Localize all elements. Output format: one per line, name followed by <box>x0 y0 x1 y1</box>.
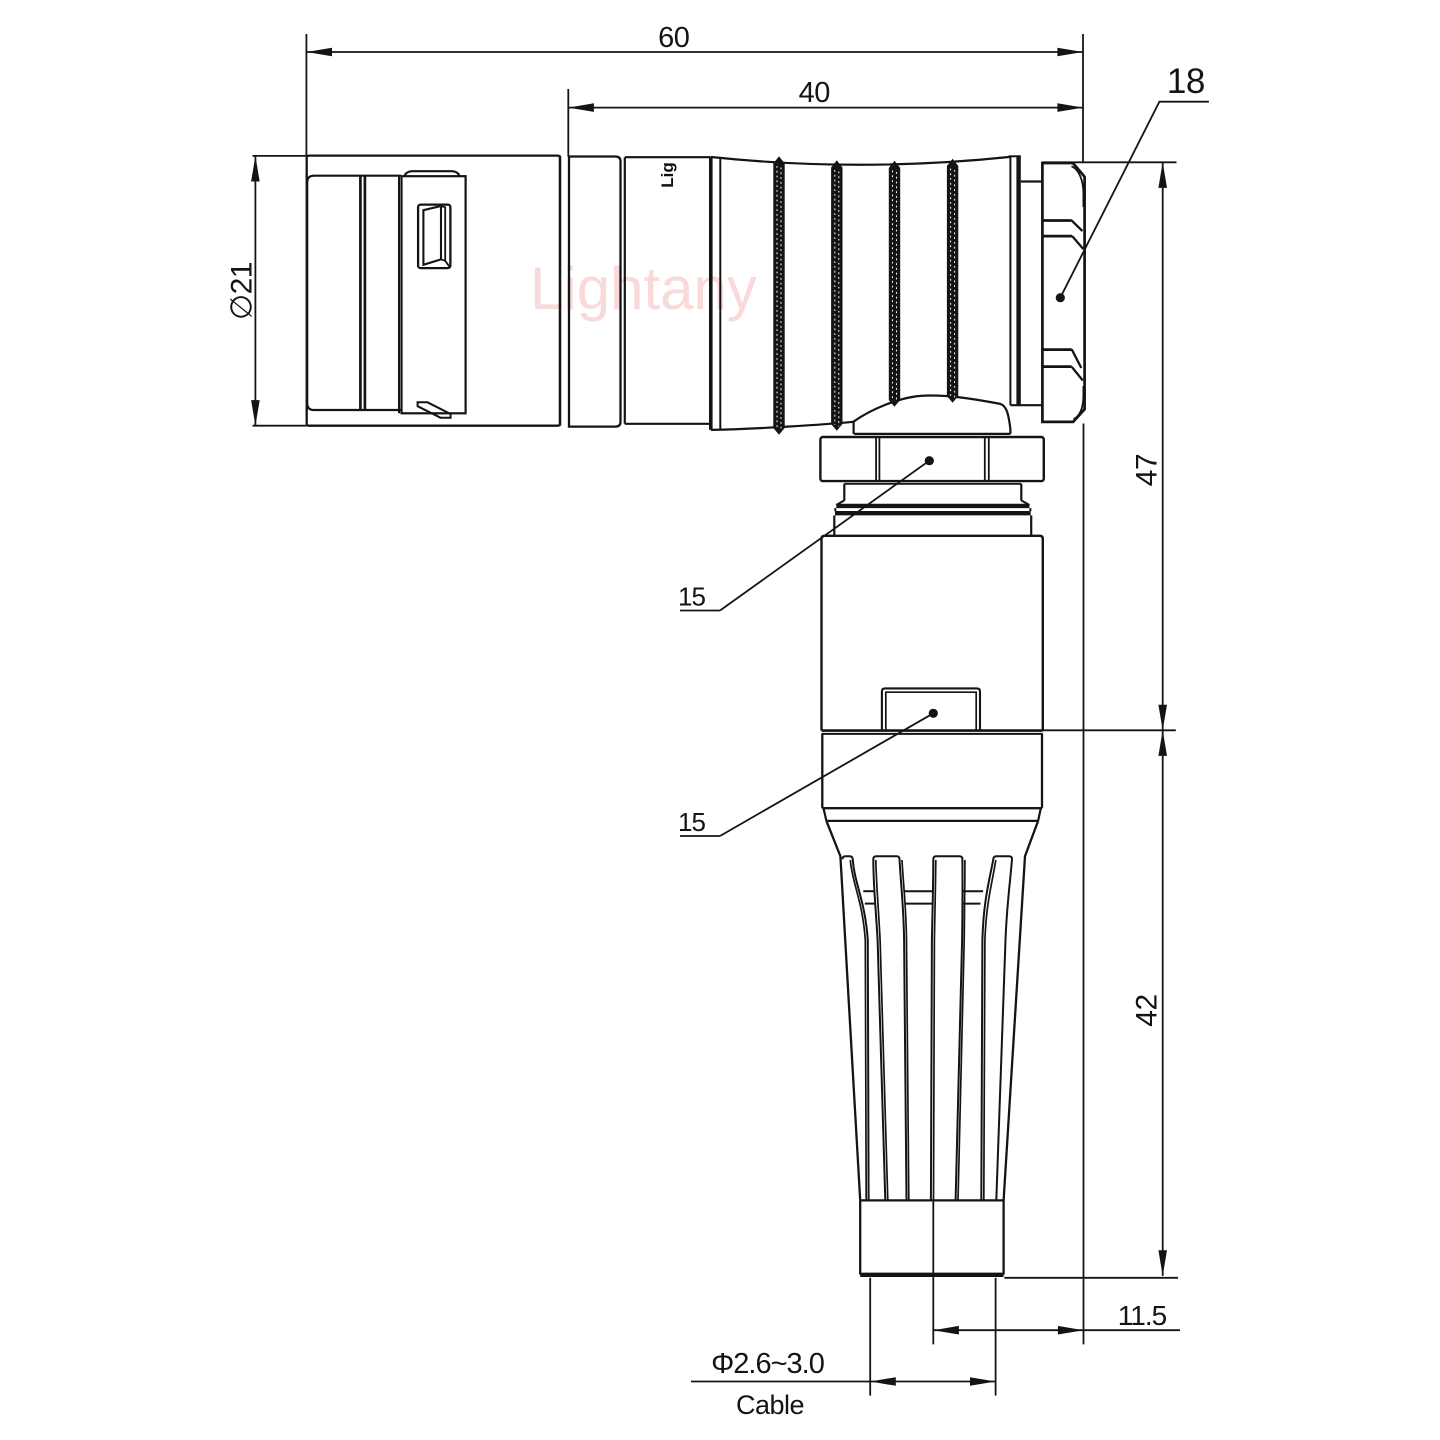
svg-text:60: 60 <box>658 22 689 54</box>
svg-text:47: 47 <box>1131 454 1164 486</box>
svg-text:Lig: Lig <box>658 162 677 188</box>
svg-text:Cable: Cable <box>736 1390 804 1420</box>
svg-text:40: 40 <box>799 77 830 109</box>
svg-text:Φ2.6~3.0: Φ2.6~3.0 <box>711 1348 824 1380</box>
svg-text:Lightany: Lightany <box>530 255 757 322</box>
svg-text:∅21: ∅21 <box>226 262 259 320</box>
svg-text:18: 18 <box>1167 62 1205 101</box>
svg-text:15: 15 <box>678 807 705 837</box>
svg-text:42: 42 <box>1131 994 1164 1026</box>
svg-text:11.5: 11.5 <box>1118 1300 1167 1331</box>
svg-text:15: 15 <box>678 582 705 612</box>
